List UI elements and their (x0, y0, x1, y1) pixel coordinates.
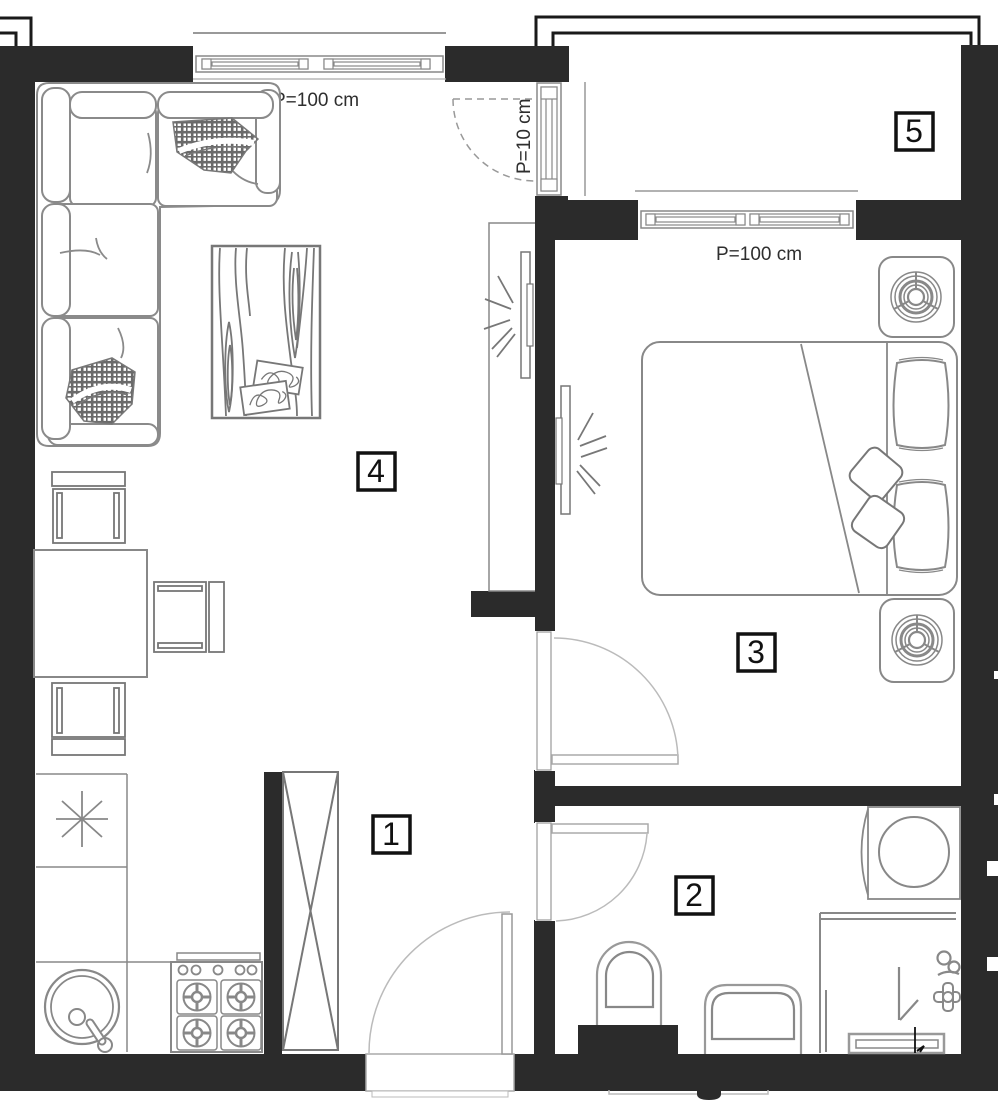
svg-text:P=10 cm: P=10 cm (514, 98, 535, 174)
svg-text:2: 2 (685, 877, 703, 913)
svg-text:P=100 cm: P=100 cm (273, 90, 359, 111)
svg-text:4: 4 (367, 453, 385, 489)
svg-text:1: 1 (382, 816, 400, 852)
svg-text:P=100 cm: P=100 cm (716, 244, 802, 265)
svg-text:5: 5 (905, 113, 923, 149)
svg-text:3: 3 (747, 634, 765, 670)
